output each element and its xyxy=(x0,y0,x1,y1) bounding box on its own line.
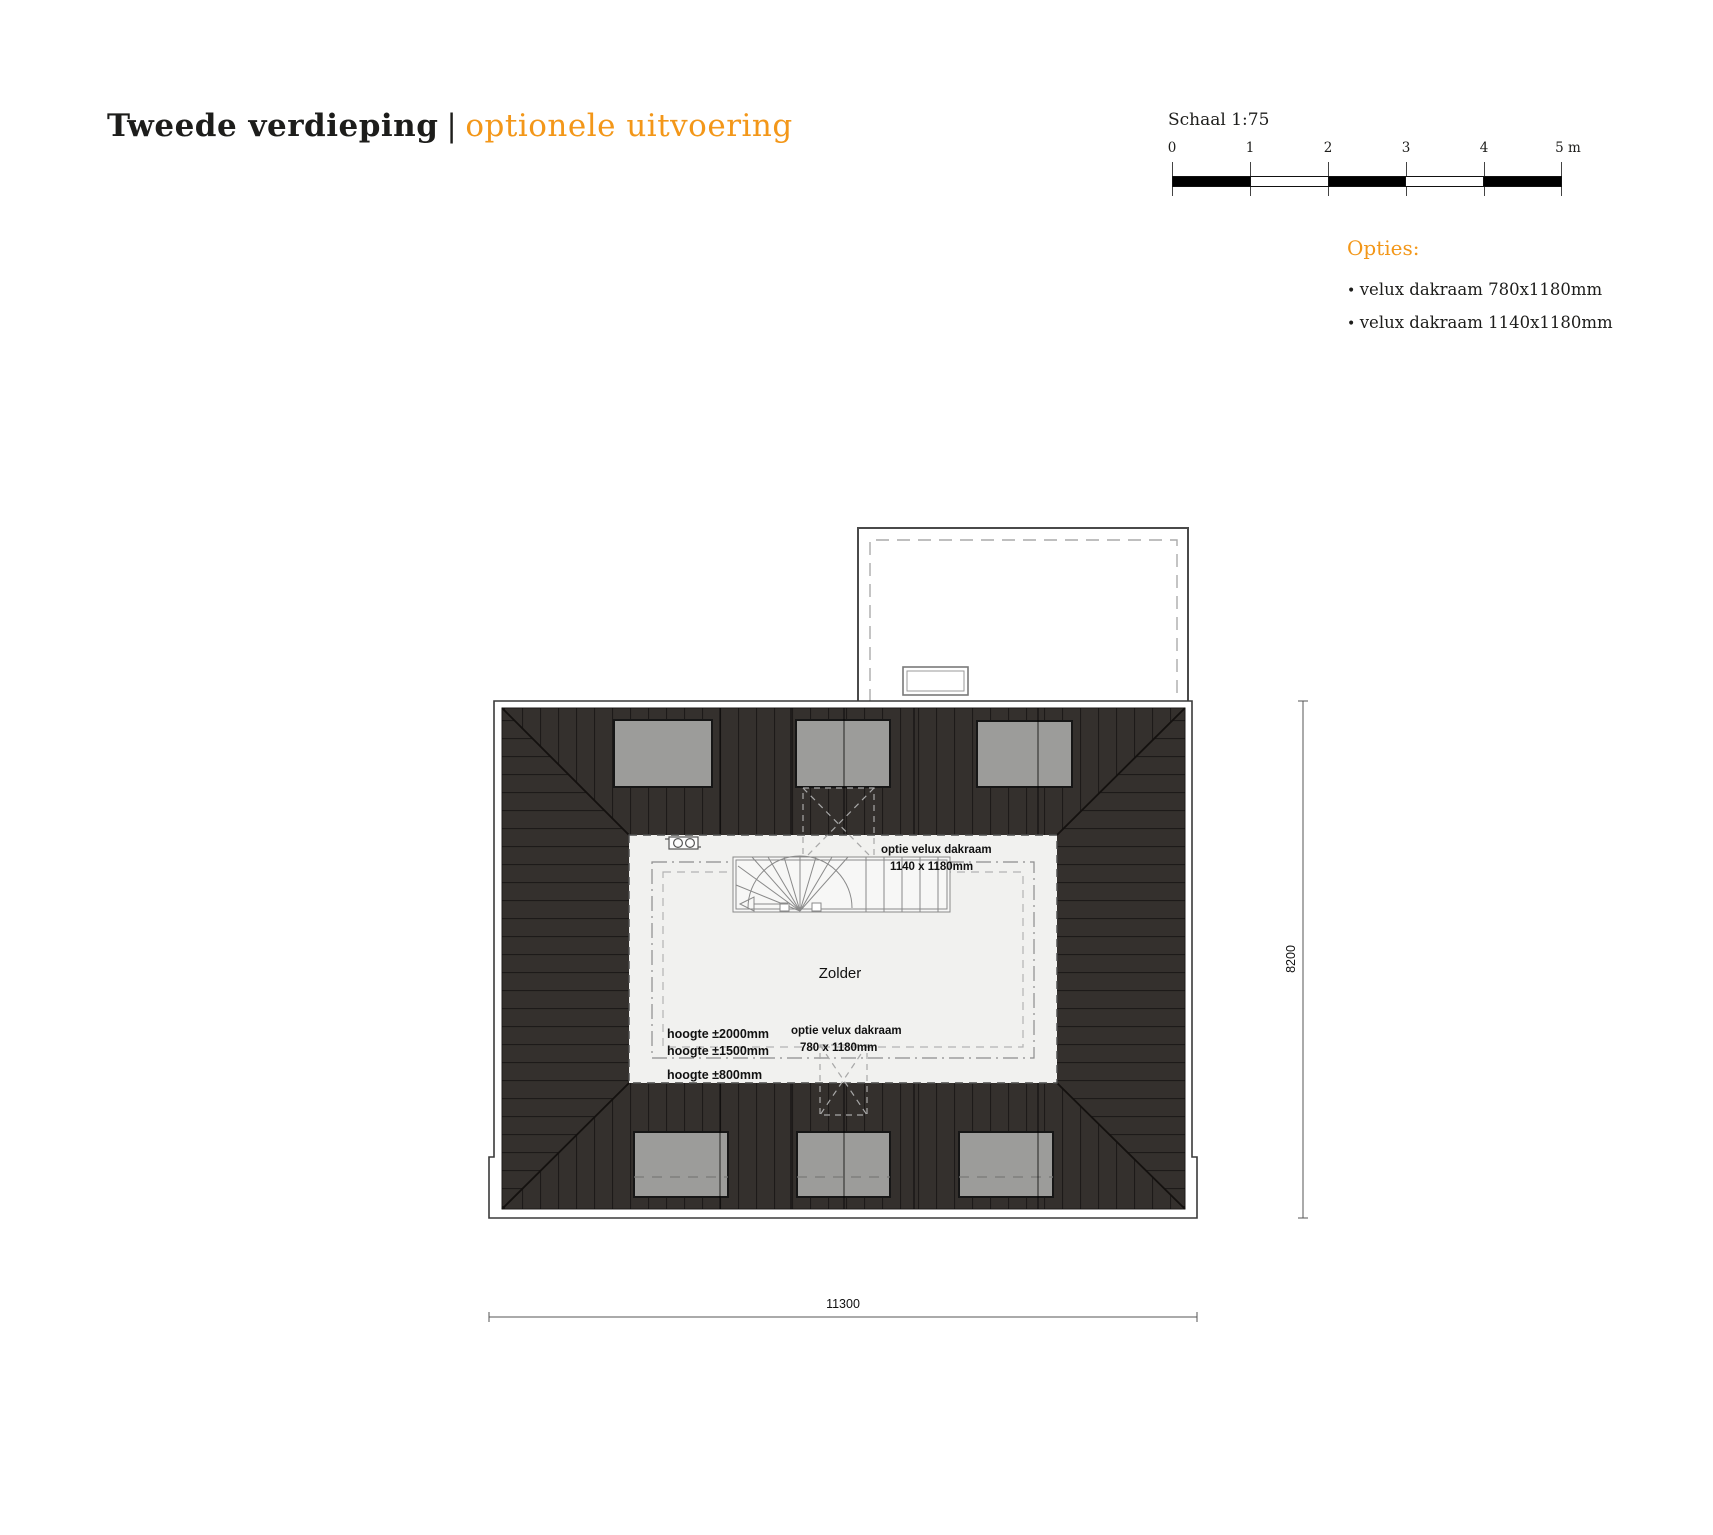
scale-bar-segment xyxy=(1173,177,1250,186)
option-item: velux dakraam 780x1180mm xyxy=(1347,280,1602,299)
scale-tick-0: 0 xyxy=(1168,140,1177,156)
scale-tick-5: 5 m xyxy=(1555,140,1581,156)
height-label-800: hoogte ±800mm xyxy=(667,1068,762,1082)
skylight-top-1 xyxy=(614,720,712,787)
height-label-2000: hoogte ±2000mm xyxy=(667,1027,769,1041)
room-label-zolder: Zolder xyxy=(800,965,880,982)
scale-bar xyxy=(1172,176,1562,187)
title-subtitle: optionele uitvoering xyxy=(465,108,792,144)
velux-bottom-note-line1: optie velux dakraam xyxy=(791,1023,902,1040)
skylight-bottom-1 xyxy=(634,1132,728,1197)
scale-tick-4: 4 xyxy=(1480,140,1489,156)
options-heading: Opties: xyxy=(1347,236,1419,260)
scale-tick-2: 2 xyxy=(1324,140,1333,156)
lower-roof-outline xyxy=(858,528,1188,702)
scale-tick-3: 3 xyxy=(1402,140,1411,156)
page-title: Tweede verdieping|optionele uitvoering xyxy=(107,108,793,144)
scale-bar-segment xyxy=(1329,177,1406,186)
skylight-bottom-3 xyxy=(959,1132,1053,1197)
option-item: velux dakraam 1140x1180mm xyxy=(1347,313,1613,332)
title-main: Tweede verdieping xyxy=(107,108,438,144)
vent-unit xyxy=(665,837,701,849)
scale-bar-segment xyxy=(1484,177,1561,186)
scale-bar-segment xyxy=(1405,177,1484,186)
scale-label: Schaal 1:75 xyxy=(1168,110,1269,130)
title-separator: | xyxy=(438,108,465,144)
skylight-top-2 xyxy=(796,720,890,787)
dimension-height: 8200 xyxy=(1284,929,1298,989)
floorplan-page: Tweede verdieping|optionele uitvoering S… xyxy=(0,0,1713,1535)
velux-bottom-note-line2: 780 x 1180mm xyxy=(800,1040,877,1057)
velux-top-note-line2: 1140 x 1180mm xyxy=(890,859,973,876)
small-velux-window xyxy=(903,667,968,695)
scale-bar-segment xyxy=(1250,177,1329,186)
dimension-width: 11300 xyxy=(813,1297,873,1311)
scale-tick-1: 1 xyxy=(1246,140,1255,156)
skylight-top-3 xyxy=(977,721,1072,787)
velux-top-note-line1: optie velux dakraam xyxy=(881,842,992,859)
height-label-1500: hoogte ±1500mm xyxy=(667,1044,769,1058)
